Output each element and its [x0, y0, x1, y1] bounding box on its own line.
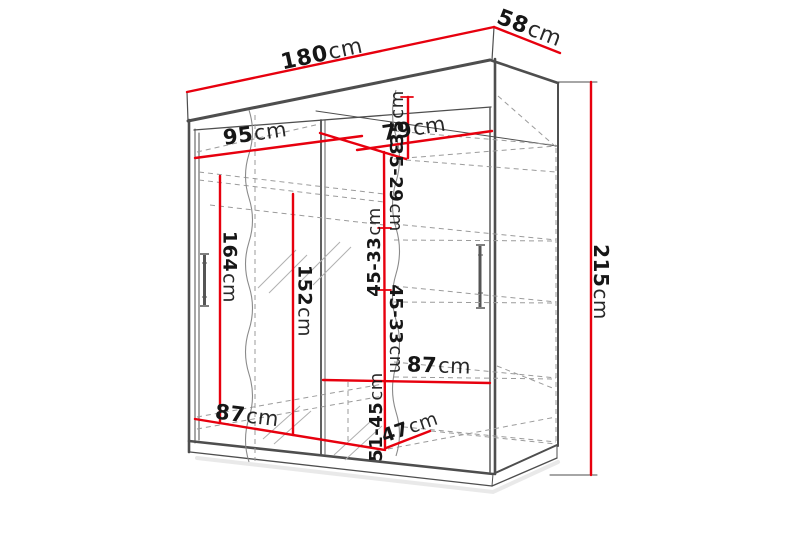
dim-label-45-33cm-lower: 45-33cm	[386, 284, 404, 374]
dim-label-35cm: 35cm	[389, 90, 407, 146]
dim-label-87cm-right: 87cm	[407, 354, 472, 377]
wardrobe-dimension-diagram: 180cm 58cm 215cm 95cm 79cm 35cm 35-29cm …	[0, 0, 800, 533]
dim-label-215cm: 215cm	[591, 244, 611, 320]
dim-label-164cm: 164cm	[220, 231, 239, 303]
dim-label-152cm: 152cm	[295, 265, 314, 337]
right-door-handle-icon	[476, 245, 485, 308]
dim-label-35-29cm: 35-29cm	[386, 142, 404, 232]
door-handles	[200, 245, 485, 308]
dim-label-51-45cm: 51-45cm	[368, 372, 386, 462]
dim-label-45-33cm-upper: 45-33cm	[366, 207, 384, 297]
left-door-handle-icon	[200, 254, 209, 306]
wardrobe-line-art	[0, 0, 800, 533]
